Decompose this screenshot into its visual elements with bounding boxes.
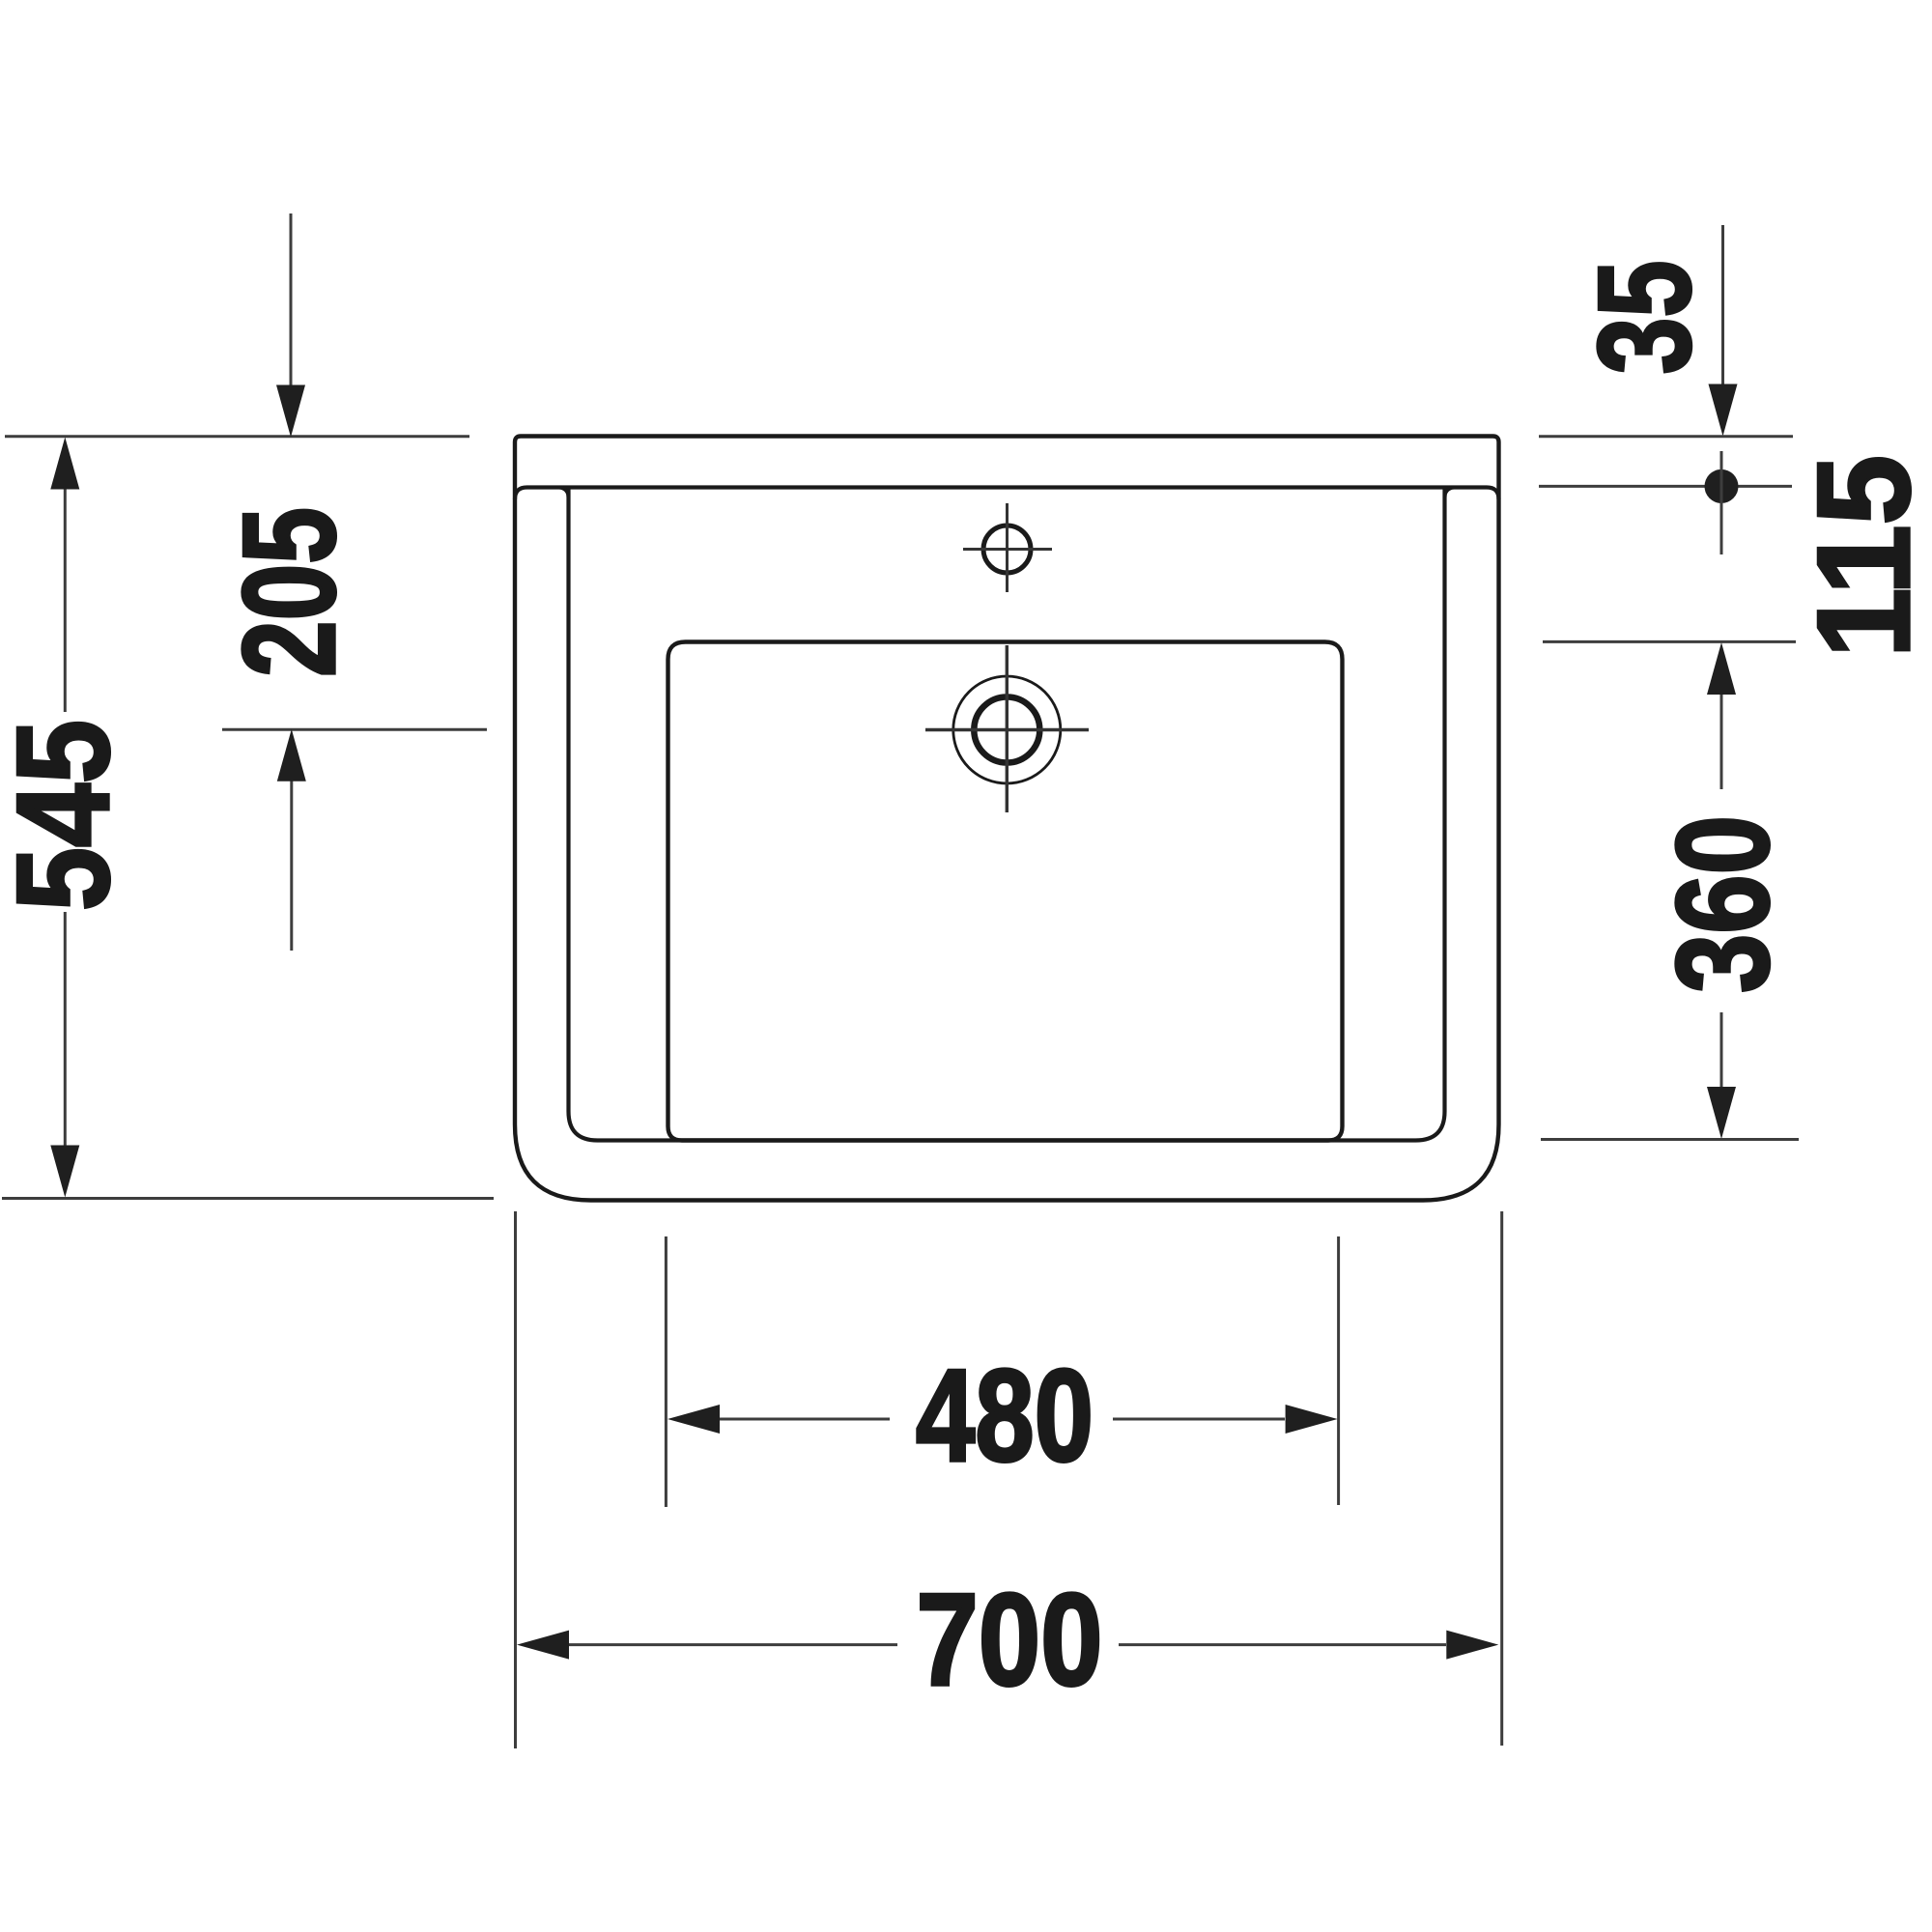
svg-text:115: 115	[1790, 455, 1932, 658]
svg-text:35: 35	[1571, 261, 1718, 375]
svg-text:700: 700	[917, 1566, 1103, 1713]
svg-text:360: 360	[1649, 815, 1796, 993]
svg-text:205: 205	[215, 507, 362, 677]
svg-text:545: 545	[0, 720, 136, 911]
svg-text:480: 480	[916, 1342, 1094, 1489]
